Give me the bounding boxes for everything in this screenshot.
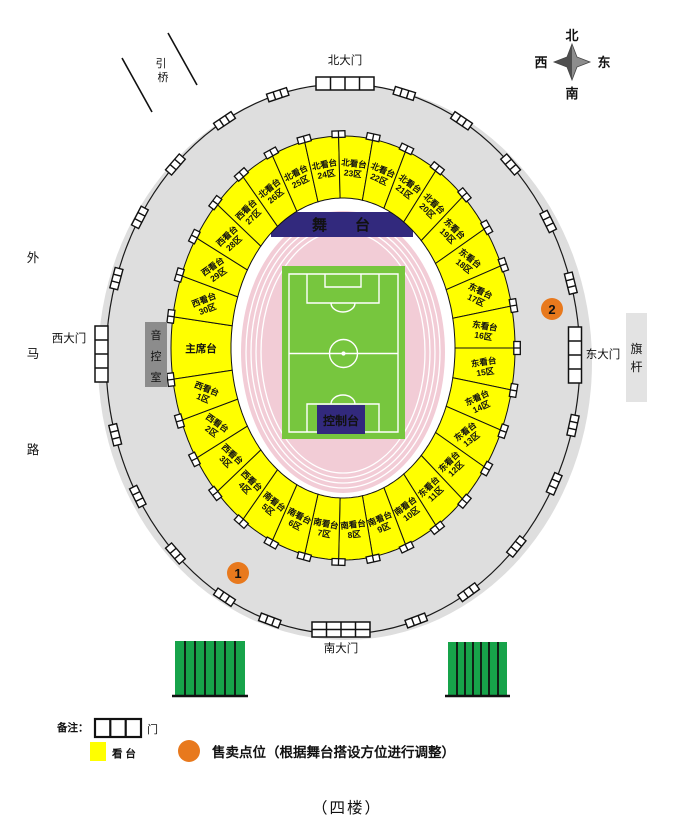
audio-control-room: 音 控 室 xyxy=(145,322,167,387)
svg-text:1: 1 xyxy=(234,566,241,581)
legend-note: 备注： xyxy=(56,721,89,734)
north-gate-label: 北大门 xyxy=(328,53,363,67)
legend-selling-label: 售卖点位（根据舞台搭设方位进行调整） xyxy=(211,744,455,760)
svg-text:控: 控 xyxy=(151,349,162,363)
stage-banner: 舞台 xyxy=(271,212,413,237)
ring-gate-0 xyxy=(167,310,175,324)
south-gate-icon xyxy=(312,622,370,637)
svg-text:8区: 8区 xyxy=(347,529,362,541)
svg-text:桥: 桥 xyxy=(158,71,169,84)
selling-point-2: 2 xyxy=(541,298,563,320)
legend-selling-icon xyxy=(178,740,200,762)
compass-west: 西 xyxy=(534,55,547,70)
legend-gate-label: 门 xyxy=(147,722,158,736)
floor-title: （四楼） xyxy=(312,799,382,817)
svg-text:室: 室 xyxy=(151,370,162,384)
svg-text:2: 2 xyxy=(548,302,555,317)
south-structure-left xyxy=(172,641,248,696)
north-gate-icon xyxy=(316,77,374,90)
legend-gate-icon xyxy=(95,719,141,737)
ring-gate-15 xyxy=(514,342,521,355)
stadium-map: 舞台 控制台 主席台西看台30区西看台29区西看台28区西看台27区北看台26区… xyxy=(0,0,692,825)
svg-text:23区: 23区 xyxy=(343,167,362,179)
control-label: 控制台 xyxy=(323,413,359,428)
south-gate-label: 南大门 xyxy=(324,641,359,655)
svg-text:旗: 旗 xyxy=(630,341,642,356)
svg-text:马: 马 xyxy=(27,347,40,361)
flagpole: 旗 杆 xyxy=(626,313,647,402)
compass-south: 南 xyxy=(565,86,578,101)
control-desk: 控制台 xyxy=(317,405,365,434)
ring-gate-16 xyxy=(509,383,518,397)
west-gate-label: 西大门 xyxy=(52,331,87,345)
svg-text:引: 引 xyxy=(156,56,167,70)
svg-text:路: 路 xyxy=(27,442,40,457)
ring-gate-7 xyxy=(332,131,345,138)
compass: 北 南 西 东 xyxy=(534,28,610,101)
west-gate-icon xyxy=(95,326,108,382)
selling-point-1: 1 xyxy=(227,562,249,584)
legend: 备注： 门 看 台 售卖点位（根据舞台搭设方位进行调整） xyxy=(56,719,455,762)
svg-text:杆: 杆 xyxy=(630,360,642,374)
compass-east: 东 xyxy=(597,55,610,70)
ring-gate-14 xyxy=(509,299,518,313)
svg-text:外: 外 xyxy=(27,251,40,265)
approach-bridge: 引 桥 xyxy=(122,33,197,112)
stage-label: 舞台 xyxy=(312,216,398,234)
outer-road-label: 外 马 路 xyxy=(27,251,40,457)
ring-gate-23 xyxy=(332,558,345,565)
east-gate-icon xyxy=(569,327,582,383)
legend-stand-label: 看 台 xyxy=(112,747,136,760)
svg-text:音: 音 xyxy=(151,328,162,342)
compass-north: 北 xyxy=(565,28,578,43)
south-structure-right xyxy=(445,642,510,696)
ring-gate-30 xyxy=(167,373,175,387)
section-label-0: 主席台 xyxy=(185,342,217,355)
compass-star-icon xyxy=(554,44,590,80)
east-gate-label: 东大门 xyxy=(586,347,621,361)
svg-text:主席台: 主席台 xyxy=(185,342,217,355)
legend-stand-swatch xyxy=(90,742,106,761)
stadium-map-page: 舞台 控制台 主席台西看台30区西看台29区西看台28区西看台27区北看台26区… xyxy=(0,0,692,825)
